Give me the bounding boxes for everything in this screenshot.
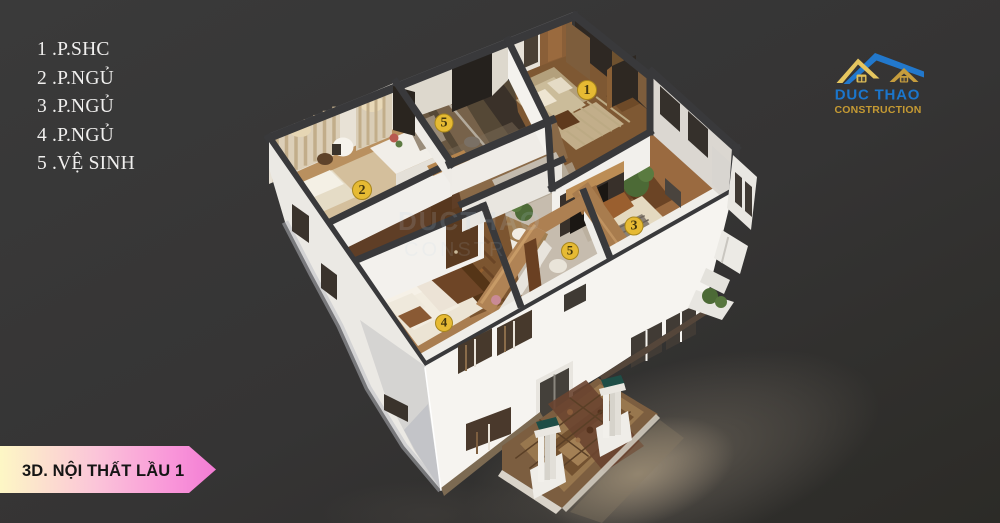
svg-text:3: 3 — [631, 219, 638, 234]
svg-text:2 .P.NGỦ: 2 .P.NGỦ — [37, 67, 114, 89]
svg-text:CONSTR: CONSTR — [404, 239, 506, 261]
svg-text:1: 1 — [584, 83, 591, 98]
svg-text:5: 5 — [567, 242, 574, 257]
svg-text:1 .P.SHC: 1 .P.SHC — [37, 39, 110, 60]
svg-text:CONSTRUCTION: CONSTRUCTION — [835, 104, 922, 116]
svg-text:2: 2 — [359, 183, 366, 198]
svg-text:4 .P.NGỦ: 4 .P.NGỦ — [37, 124, 114, 146]
svg-text:4: 4 — [441, 314, 448, 329]
svg-text:5 .VỆ SINH: 5 .VỆ SINH — [37, 152, 135, 174]
svg-text:3 .P.NGỦ: 3 .P.NGỦ — [37, 95, 114, 117]
svg-text:DUC THAO: DUC THAO — [835, 87, 921, 104]
svg-text:DUCTHAO: DUCTHAO — [398, 206, 542, 236]
svg-text:5: 5 — [441, 116, 448, 131]
svg-text:3D. NỘI THẤT LẦU 1: 3D. NỘI THẤT LẦU 1 — [22, 461, 184, 480]
